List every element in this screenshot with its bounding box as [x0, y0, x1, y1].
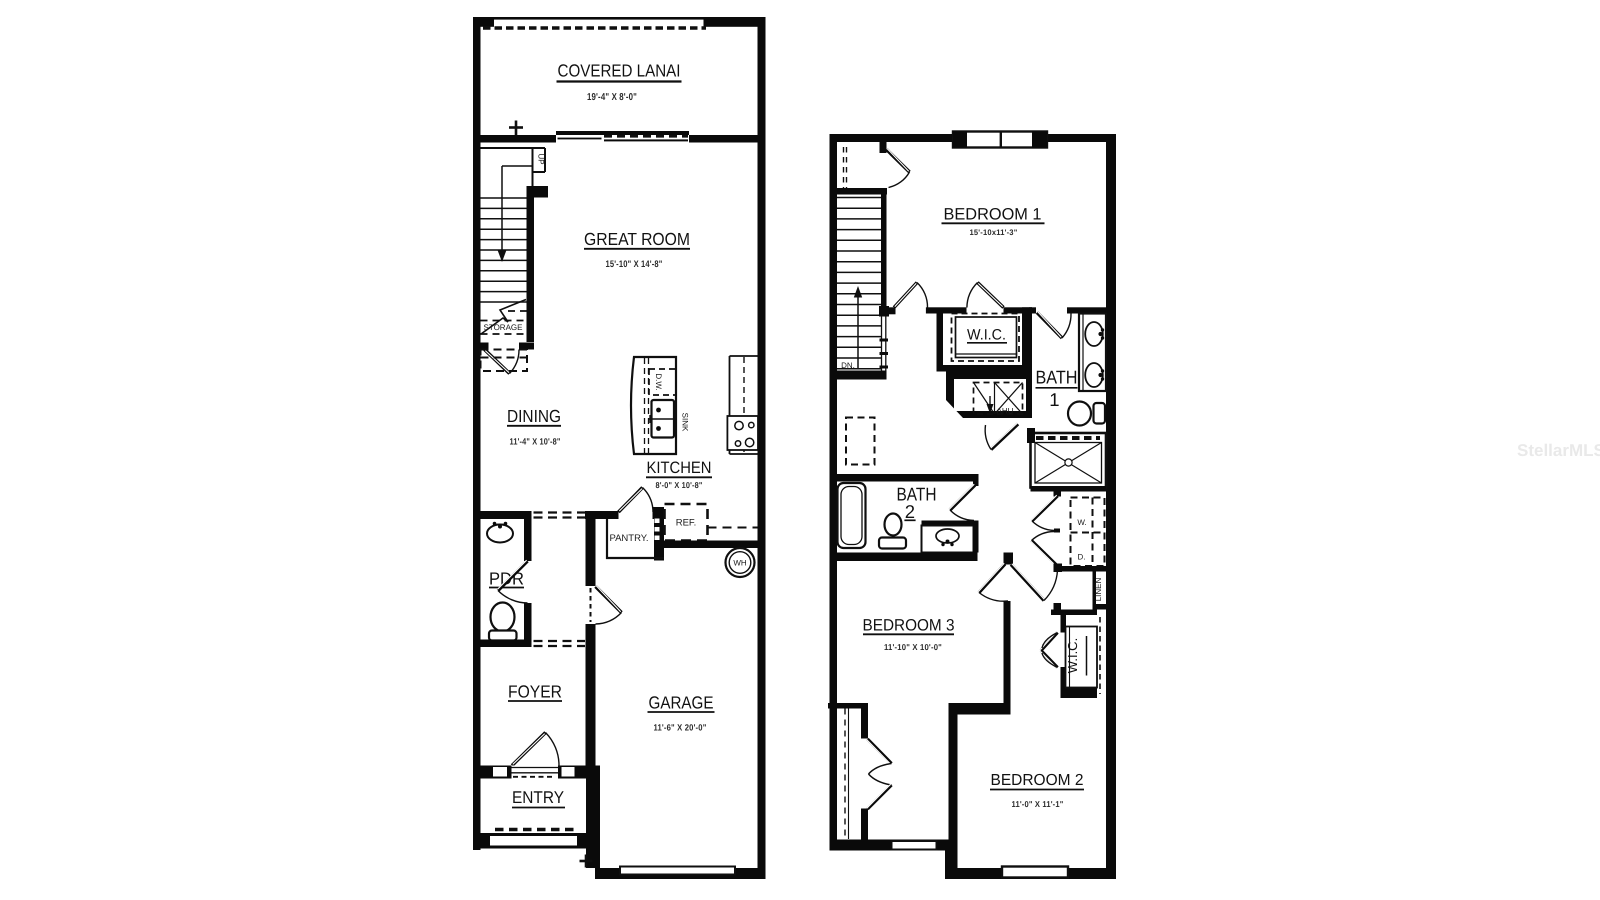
svg-text:8'-0" X 10'-8": 8'-0" X 10'-8"	[656, 480, 703, 490]
svg-text:StellarMLS: StellarMLS	[1517, 441, 1600, 460]
svg-text:LINEN: LINEN	[1094, 577, 1103, 601]
svg-text:GREAT ROOM: GREAT ROOM	[584, 229, 690, 249]
svg-text:BATH: BATH	[897, 484, 937, 505]
svg-text:FOYER: FOYER	[508, 682, 562, 702]
svg-text:1: 1	[1049, 389, 1060, 410]
svg-text:REF.: REF.	[676, 518, 697, 529]
svg-text:11'-10" X 10'-0": 11'-10" X 10'-0"	[884, 642, 942, 652]
svg-text:15'-10" X 14'-8": 15'-10" X 14'-8"	[606, 259, 663, 270]
svg-text:DN.: DN.	[841, 361, 855, 370]
svg-text:11'-6" X 20'-0": 11'-6" X 20'-0"	[654, 723, 707, 733]
svg-text:11'-4" X 10'-8": 11'-4" X 10'-8"	[510, 437, 561, 447]
svg-text:BATH: BATH	[1036, 367, 1078, 388]
svg-text:AHU: AHU	[997, 407, 1014, 416]
svg-text:D.: D.	[1078, 553, 1086, 562]
svg-text:W.: W.	[1077, 518, 1086, 527]
svg-text:SINK: SINK	[681, 413, 690, 432]
svg-text:PANTRY.: PANTRY.	[609, 533, 648, 544]
svg-text:WH: WH	[733, 559, 747, 568]
svg-text:UP: UP	[537, 153, 546, 164]
svg-text:D.W.: D.W.	[654, 373, 663, 390]
svg-text:BEDROOM 3: BEDROOM 3	[863, 617, 955, 635]
svg-text:COVERED LANAI: COVERED LANAI	[558, 61, 681, 81]
svg-text:15'-10x11'-3": 15'-10x11'-3"	[970, 228, 1018, 237]
svg-text:ENTRY: ENTRY	[512, 788, 564, 807]
svg-text:GARAGE: GARAGE	[649, 693, 714, 713]
svg-text:2: 2	[905, 501, 916, 522]
svg-text:W.I.C.: W.I.C.	[1065, 638, 1080, 673]
svg-text:BEDROOM 1: BEDROOM 1	[944, 206, 1042, 224]
svg-text:DINING: DINING	[507, 406, 561, 426]
svg-text:STORAGE: STORAGE	[484, 323, 523, 332]
svg-text:19'-4" X 8'-0": 19'-4" X 8'-0"	[587, 92, 637, 103]
svg-text:BEDROOM 2: BEDROOM 2	[991, 772, 1084, 789]
svg-text:KITCHEN: KITCHEN	[647, 459, 712, 477]
svg-text:W.I.C.: W.I.C.	[967, 327, 1006, 344]
svg-text:11'-0" X 11'-1": 11'-0" X 11'-1"	[1012, 799, 1064, 809]
